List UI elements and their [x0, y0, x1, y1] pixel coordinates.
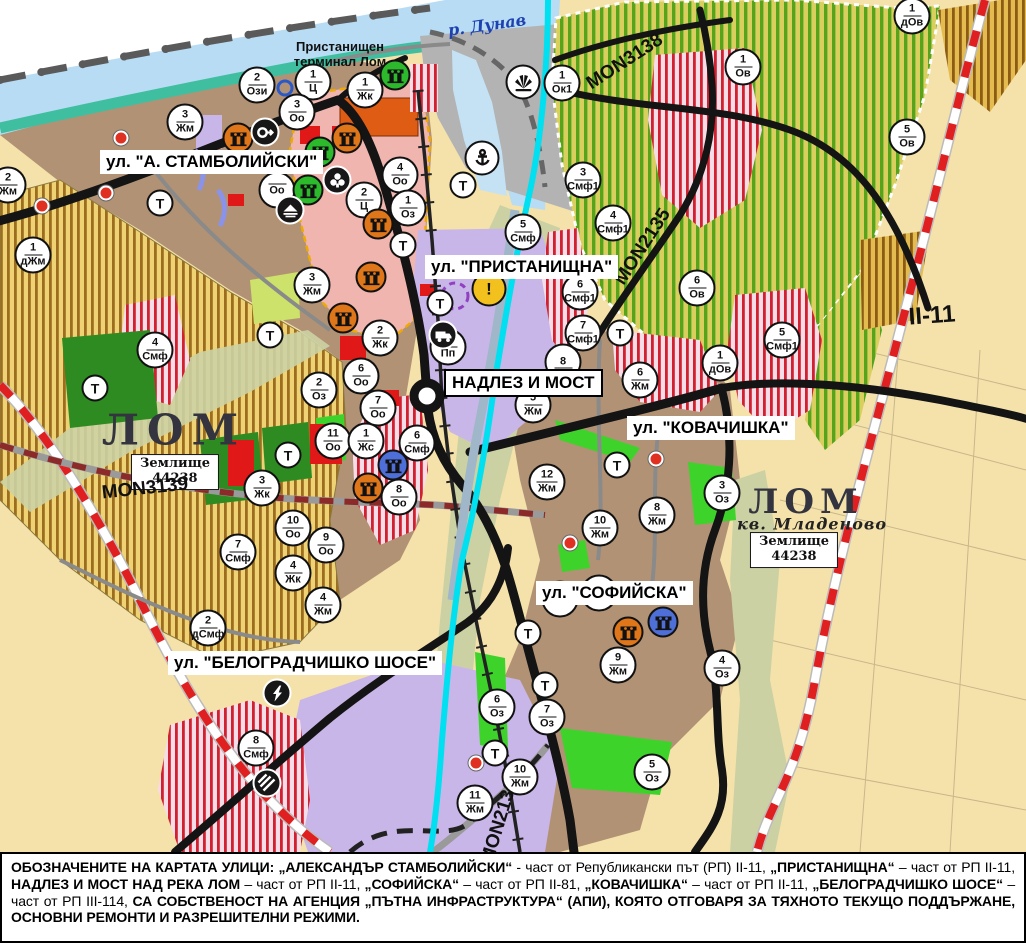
street-labels-layer: ул. "А. СТАМБОЛИЙСКИ"ул. "ПРИСТАНИЩНА"НА…: [0, 0, 1026, 852]
zoning-map-page: р. ДунавПристанищентерминал ЛомЛОМЛОМкв.…: [0, 0, 1026, 943]
caption-segment: – част от РП II-11,: [895, 859, 1015, 875]
street-label: НАДЛЕЗ И МОСТ: [444, 369, 603, 397]
caption-segment: СА СОБСТВЕНОСТ НА АГЕНЦИЯ „ПЪТНА ИНФРАСТ…: [11, 893, 1015, 926]
caption-segment: „КОВАЧИШКА“: [585, 876, 688, 892]
street-label: ул. "БЕЛОГРАДЧИШКО ШОСЕ": [168, 651, 442, 675]
map-canvas[interactable]: р. ДунавПристанищентерминал ЛомЛОМЛОМкв.…: [0, 0, 1026, 852]
street-label: ул. "КОВАЧИШКА": [627, 416, 795, 440]
caption-segment: „СОФИЙСКА“: [365, 876, 460, 892]
caption-segment: – част от РП II-11,: [240, 876, 364, 892]
caption-segment: „АЛЕКСАНДЪР СТАМБОЛИЙСКИ“: [278, 859, 512, 875]
street-label: ул. "ПРИСТАНИЩНА": [425, 255, 618, 279]
caption-segment: – част от РП II-81,: [459, 876, 584, 892]
street-label: ул. "СОФИЙСКА": [536, 581, 693, 605]
caption-segment: НАДЛЕЗ И МОСТ НАД РЕКА ЛОМ: [11, 876, 240, 892]
caption-segment: ОБОЗНАЧЕНИТЕ НА КАРТАТА УЛИЦИ:: [11, 859, 278, 875]
caption-segment: „ПРИСТАНИЩНА“: [770, 859, 894, 875]
caption-segment: „БЕЛОГРАДЧИШКО ШОСЕ“: [812, 876, 1003, 892]
caption-segment: – част от РП II-11,: [688, 876, 812, 892]
street-label: ул. "А. СТАМБОЛИЙСКИ": [100, 150, 323, 174]
map-caption: ОБОЗНАЧЕНИТЕ НА КАРТАТА УЛИЦИ: „АЛЕКСАНД…: [0, 852, 1026, 943]
caption-segment: - част от Републикански път (РП) II-11,: [512, 859, 770, 875]
